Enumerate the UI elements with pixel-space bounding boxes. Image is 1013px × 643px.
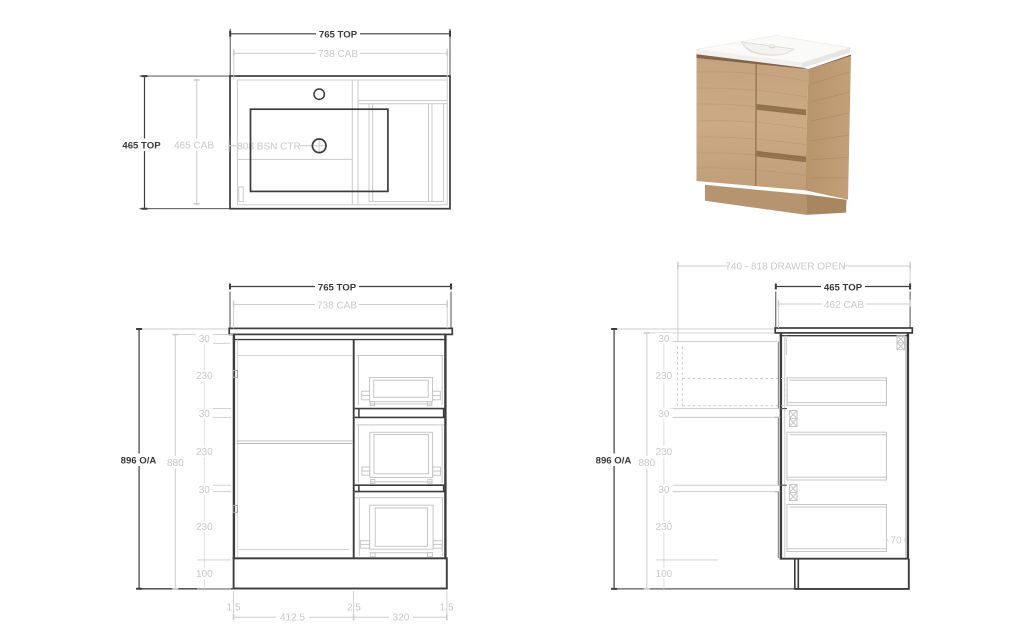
svg-text:412.5: 412.5 [280,613,305,624]
svg-text:765 TOP: 765 TOP [319,30,358,41]
svg-text:465 CAB: 465 CAB [174,140,214,151]
svg-text:30: 30 [658,334,670,345]
svg-text:230: 230 [196,522,213,533]
svg-text:230: 230 [196,447,213,458]
svg-text:465 TOP: 465 TOP [824,282,863,293]
svg-text:765 TOP: 765 TOP [318,282,357,293]
svg-text:230: 230 [656,447,673,458]
svg-text:880: 880 [638,458,655,469]
svg-text:896 O/A: 896 O/A [596,455,632,466]
svg-text:738 CAB: 738 CAB [318,49,358,60]
svg-text:30: 30 [199,409,211,420]
svg-text:100: 100 [196,569,213,580]
svg-text:30: 30 [658,409,670,420]
svg-text:880: 880 [167,458,184,469]
svg-text:30: 30 [199,334,211,345]
svg-text:1.5: 1.5 [227,603,241,614]
svg-text:70: 70 [890,535,902,546]
svg-text:30: 30 [658,485,670,496]
svg-text:738 CAB: 738 CAB [317,300,357,311]
svg-text:2.5: 2.5 [347,603,361,614]
svg-text:230: 230 [656,371,673,382]
svg-text:320: 320 [393,613,410,624]
svg-text:1.5: 1.5 [440,603,454,614]
svg-text:230: 230 [196,371,213,382]
svg-text:30: 30 [199,485,211,496]
svg-text:465 TOP: 465 TOP [122,140,161,151]
svg-text:740 - 818 DRAWER OPEN: 740 - 818 DRAWER OPEN [725,262,845,273]
svg-text:308 BSN CTR: 308 BSN CTR [237,141,300,152]
svg-text:100: 100 [656,569,673,580]
svg-text:230: 230 [656,522,673,533]
svg-text:896 O/A: 896 O/A [121,455,157,466]
svg-text:462 CAB: 462 CAB [824,300,864,311]
